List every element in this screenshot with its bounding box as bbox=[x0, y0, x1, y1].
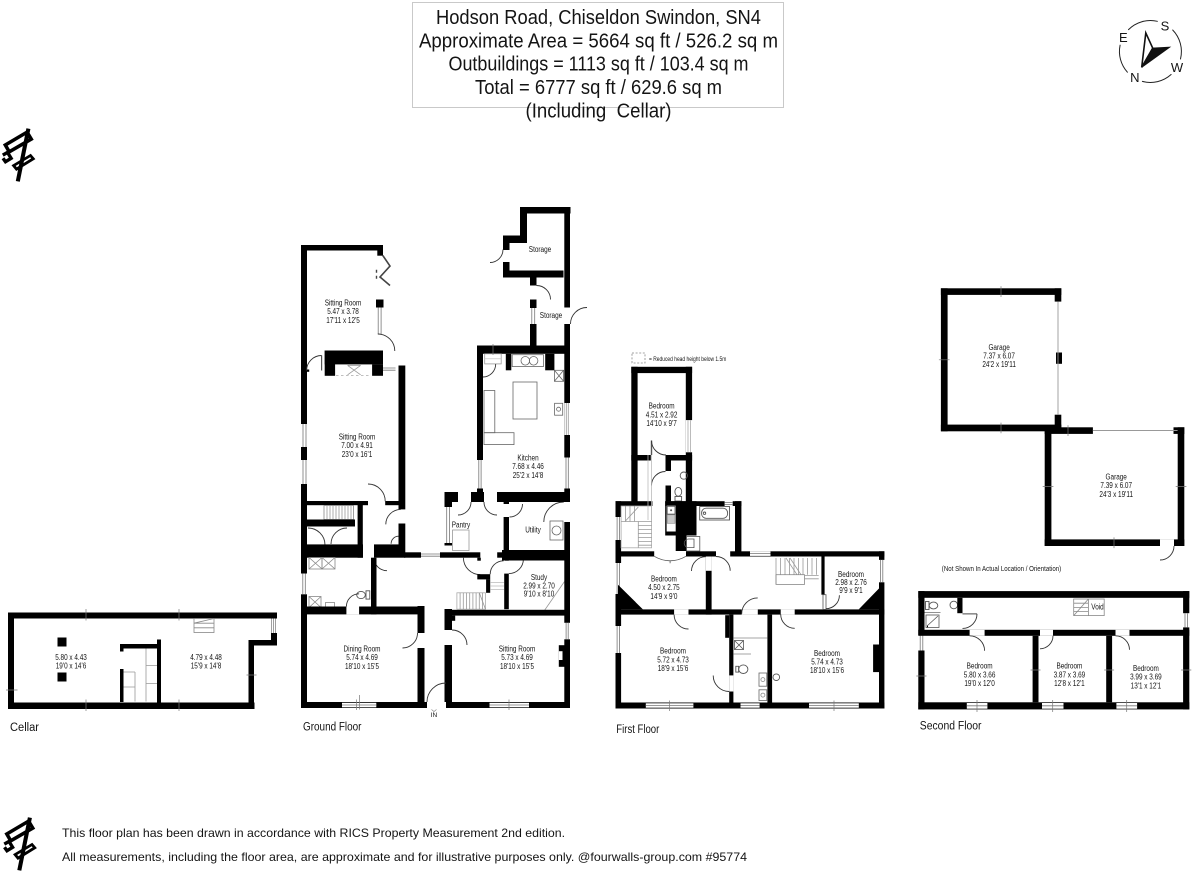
svg-text:5.74 x 4.73: 5.74 x 4.73 bbox=[811, 658, 843, 667]
svg-text:Ground Floor: Ground Floor bbox=[303, 722, 362, 734]
svg-text:7.00 x 4.91: 7.00 x 4.91 bbox=[341, 442, 373, 451]
svg-text:5.74 x 4.69: 5.74 x 4.69 bbox=[346, 654, 378, 663]
svg-text:Total = 6777 sq ft / 629.6 sq: Total = 6777 sq ft / 629.6 sq m bbox=[475, 77, 722, 99]
svg-text:7.37 x 6.07: 7.37 x 6.07 bbox=[983, 352, 1015, 361]
svg-text:This floor plan has been drawn: This floor plan has been drawn in accord… bbox=[62, 826, 565, 840]
svg-text:Void: Void bbox=[1091, 603, 1103, 612]
svg-text:Bedroom: Bedroom bbox=[967, 662, 993, 671]
svg-text:24'3 x 19'11: 24'3 x 19'11 bbox=[1099, 490, 1133, 499]
svg-text:17'11 x 12'5: 17'11 x 12'5 bbox=[326, 316, 360, 325]
svg-text:9'9 x 9'1: 9'9 x 9'1 bbox=[839, 586, 862, 595]
svg-text:(Not Shown In Actual Location: (Not Shown In Actual Location / Orientat… bbox=[942, 565, 1061, 573]
svg-text:First Floor: First Floor bbox=[616, 724, 659, 736]
svg-text:Cellar: Cellar bbox=[10, 722, 39, 734]
svg-text:Hodson Road, Chiseldon Swindon: Hodson Road, Chiseldon Swindon, SN4 bbox=[436, 7, 761, 29]
svg-text:14'9 x 9'0: 14'9 x 9'0 bbox=[650, 592, 677, 601]
svg-text:IN: IN bbox=[431, 712, 438, 719]
svg-text:Outbuildings = 1113 sq ft / 10: Outbuildings = 1113 sq ft / 103.4 sq m bbox=[449, 54, 749, 76]
svg-text:Garage: Garage bbox=[988, 343, 1009, 352]
svg-text:Kitchen: Kitchen bbox=[517, 454, 538, 463]
svg-text:7.68 x 4.46: 7.68 x 4.46 bbox=[512, 463, 544, 472]
svg-text:Garage: Garage bbox=[1106, 473, 1127, 482]
svg-text:Storage: Storage bbox=[540, 311, 562, 320]
svg-text:Utility: Utility bbox=[525, 526, 541, 535]
svg-text:Bedroom: Bedroom bbox=[1056, 662, 1082, 671]
svg-text:5.72 x 4.73: 5.72 x 4.73 bbox=[657, 656, 689, 665]
svg-text:Sitting Room: Sitting Room bbox=[325, 299, 362, 308]
svg-text:3.99 x 3.69: 3.99 x 3.69 bbox=[1130, 673, 1162, 682]
svg-text:Approximate Area = 5664 sq ft: Approximate Area = 5664 sq ft / 526.2 sq… bbox=[419, 30, 778, 52]
svg-text:5.73 x 4.69: 5.73 x 4.69 bbox=[501, 654, 533, 663]
svg-text:Bedroom: Bedroom bbox=[651, 575, 677, 584]
svg-text:24'2 x 19'11: 24'2 x 19'11 bbox=[982, 361, 1016, 370]
svg-text:Bedroom: Bedroom bbox=[1133, 664, 1159, 673]
svg-text:5.47 x 3.78: 5.47 x 3.78 bbox=[327, 308, 359, 317]
svg-text:(Including Cellar): (Including Cellar) bbox=[526, 100, 672, 122]
svg-text:19'0 x 12'0: 19'0 x 12'0 bbox=[964, 679, 995, 688]
svg-text:5.80 x 4.43: 5.80 x 4.43 bbox=[55, 653, 87, 662]
svg-text:3.87 x 3.69: 3.87 x 3.69 bbox=[1054, 671, 1086, 680]
svg-text:Bedroom: Bedroom bbox=[660, 647, 686, 656]
svg-text:19'0 x 14'6: 19'0 x 14'6 bbox=[56, 662, 87, 671]
svg-text:18'10 x 15'5: 18'10 x 15'5 bbox=[500, 662, 534, 671]
svg-text:Dining Room: Dining Room bbox=[344, 645, 381, 654]
svg-text:Bedroom: Bedroom bbox=[649, 402, 675, 411]
svg-text:N: N bbox=[1130, 70, 1139, 85]
svg-text:23'0 x 16'1: 23'0 x 16'1 bbox=[342, 450, 373, 459]
svg-text:7.39 x 6.07: 7.39 x 6.07 bbox=[1100, 482, 1132, 491]
svg-text:Second Floor: Second Floor bbox=[920, 721, 982, 733]
svg-text:4.51 x 2.92: 4.51 x 2.92 bbox=[646, 411, 678, 420]
svg-text:18'10 x 15'6: 18'10 x 15'6 bbox=[810, 667, 844, 676]
svg-text:= Reduced head height below 1.: = Reduced head height below 1.5m bbox=[649, 357, 727, 364]
svg-text:12'8 x 12'1: 12'8 x 12'1 bbox=[1054, 679, 1085, 688]
svg-text:14'10 x 9'7: 14'10 x 9'7 bbox=[646, 419, 677, 428]
svg-text:E: E bbox=[1119, 30, 1128, 45]
svg-text:4.79 x 4.48: 4.79 x 4.48 bbox=[190, 653, 222, 662]
svg-text:4.50 x 2.75: 4.50 x 2.75 bbox=[648, 584, 680, 593]
svg-text:Pantry: Pantry bbox=[452, 521, 471, 530]
svg-text:15'9 x 14'8: 15'9 x 14'8 bbox=[191, 662, 222, 671]
svg-text:Storage: Storage bbox=[529, 245, 551, 254]
svg-text:W: W bbox=[1171, 60, 1184, 75]
svg-text:25'2 x 14'8: 25'2 x 14'8 bbox=[513, 471, 544, 480]
svg-text:All measurements, including th: All measurements, including the floor ar… bbox=[62, 850, 747, 864]
svg-text:9'10 x 8'10: 9'10 x 8'10 bbox=[524, 590, 555, 599]
svg-text:18'9 x 15'6: 18'9 x 15'6 bbox=[658, 664, 689, 673]
svg-text:18'10 x 15'5: 18'10 x 15'5 bbox=[345, 662, 379, 671]
svg-text:5.80 x 3.66: 5.80 x 3.66 bbox=[964, 671, 996, 680]
svg-text:13'1 x 12'1: 13'1 x 12'1 bbox=[1131, 682, 1162, 691]
svg-text:Sitting Room: Sitting Room bbox=[499, 645, 536, 654]
svg-text:Bedroom: Bedroom bbox=[814, 649, 840, 658]
svg-text:S: S bbox=[1161, 19, 1170, 34]
svg-text:Sitting Room: Sitting Room bbox=[339, 433, 376, 442]
